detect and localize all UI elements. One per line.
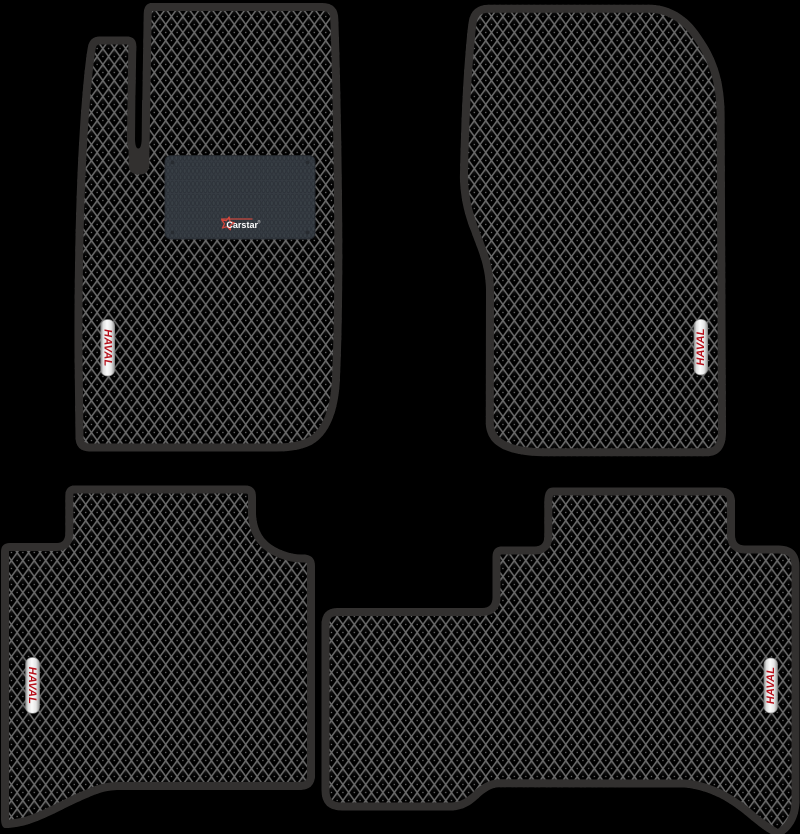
svg-text:HAVAL: HAVAL xyxy=(765,667,777,704)
svg-text:HAVAL: HAVAL xyxy=(26,667,38,704)
svg-text:HAVAL: HAVAL xyxy=(102,329,114,366)
svg-text:HAVAL: HAVAL xyxy=(695,328,707,365)
svg-text:Carstar: Carstar xyxy=(226,220,258,230)
